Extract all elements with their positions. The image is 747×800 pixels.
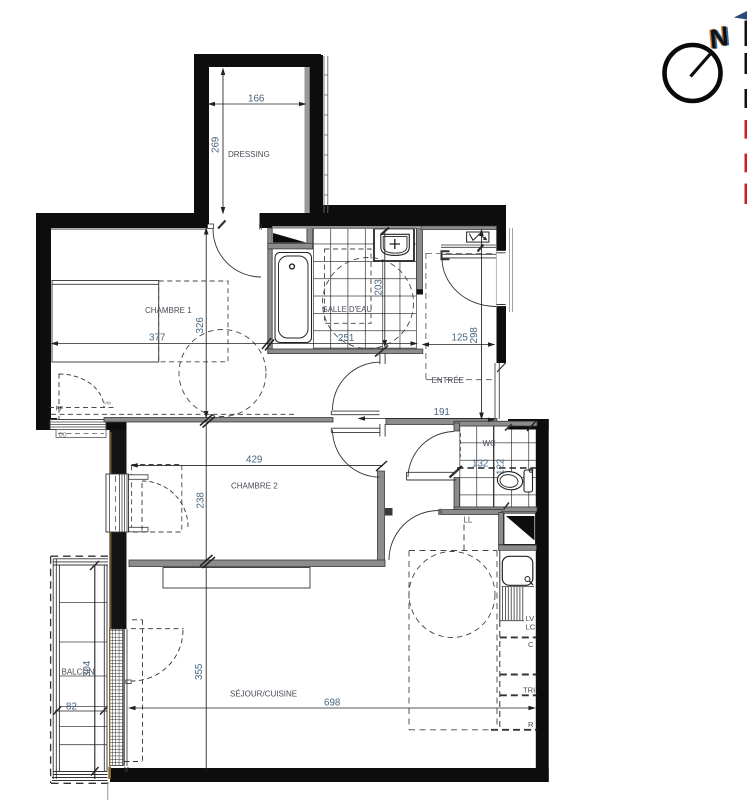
svg-text:WC: WC xyxy=(483,439,497,448)
svg-text:SÉJOUR/CUISINE: SÉJOUR/CUISINE xyxy=(230,690,297,699)
svg-text:191: 191 xyxy=(434,407,450,418)
svg-text:377: 377 xyxy=(149,333,165,344)
svg-text:SALLE D'EAU: SALLE D'EAU xyxy=(323,305,373,314)
svg-text:304: 304 xyxy=(82,660,93,677)
svg-text:C: C xyxy=(528,640,534,649)
svg-text:166: 166 xyxy=(248,94,265,105)
svg-text:LC: LC xyxy=(526,623,536,632)
svg-text:326: 326 xyxy=(195,317,206,334)
svg-text:VM: VM xyxy=(104,401,111,406)
svg-text:298: 298 xyxy=(469,327,480,344)
svg-text:DRESSING: DRESSING xyxy=(228,150,270,159)
svg-text:698: 698 xyxy=(324,698,341,709)
svg-text:R: R xyxy=(528,720,534,729)
svg-text:122: 122 xyxy=(496,459,507,475)
svg-text:203: 203 xyxy=(374,279,385,296)
svg-text:125: 125 xyxy=(452,333,469,344)
svg-text:ENTRÉE: ENTRÉE xyxy=(432,376,464,385)
svg-text:251: 251 xyxy=(338,333,354,344)
svg-text:TRI: TRI xyxy=(523,686,535,695)
svg-text:238: 238 xyxy=(196,492,207,509)
svg-text:DO: DO xyxy=(59,433,67,439)
svg-text:132: 132 xyxy=(472,459,488,470)
svg-text:355: 355 xyxy=(194,663,205,680)
svg-text:CHAMBRE 2: CHAMBRE 2 xyxy=(231,482,278,491)
svg-text:82: 82 xyxy=(66,702,77,713)
svg-text:LL: LL xyxy=(464,516,473,525)
svg-text:269: 269 xyxy=(211,137,222,153)
svg-text:CHAMBRE 1: CHAMBRE 1 xyxy=(145,306,192,315)
svg-text:429: 429 xyxy=(246,455,262,466)
